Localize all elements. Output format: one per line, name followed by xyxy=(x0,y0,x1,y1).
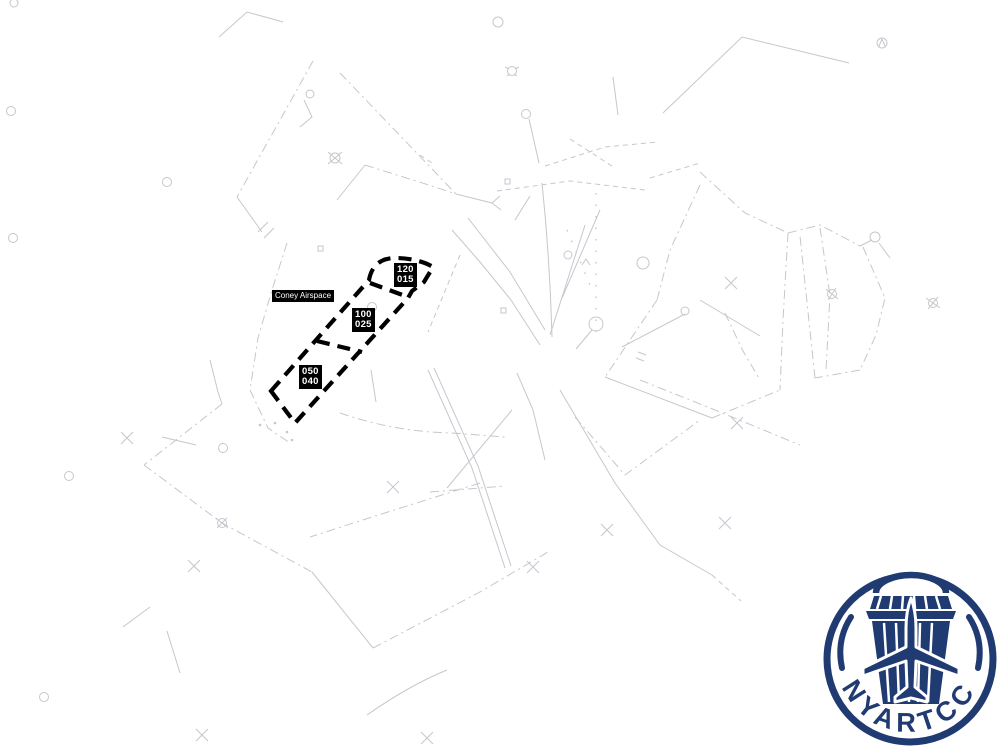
fix-circle-icon xyxy=(7,0,888,702)
altitude-bottom: 015 xyxy=(397,275,414,285)
nyartcc-logo: NYARTCC xyxy=(827,575,993,742)
navaid-symbols xyxy=(7,0,941,744)
altitude-block-mid: 100 025 xyxy=(352,308,375,332)
fix-dot-icon xyxy=(259,422,294,442)
sector-boundaries xyxy=(123,12,890,715)
altitude-top: 100 xyxy=(355,310,372,320)
airspace-map-viewport: NYARTCC Coney Airspace 120 015 100 025 0… xyxy=(0,0,1000,749)
altitude-block-low: 050 040 xyxy=(299,365,322,389)
altitude-bottom: 040 xyxy=(302,377,319,387)
sector-map-canvas: NYARTCC xyxy=(0,0,1000,749)
obstacle-x-icon xyxy=(121,277,743,744)
altitude-top: 120 xyxy=(397,265,414,275)
altitude-top: 050 xyxy=(302,367,319,377)
coney-sector-divider-lower xyxy=(317,341,362,352)
altitude-block-high: 120 015 xyxy=(394,263,417,287)
altitude-bottom: 025 xyxy=(355,320,372,330)
waypoint-square-icon xyxy=(318,179,510,313)
coney-airspace-label: Coney Airspace xyxy=(272,290,334,302)
